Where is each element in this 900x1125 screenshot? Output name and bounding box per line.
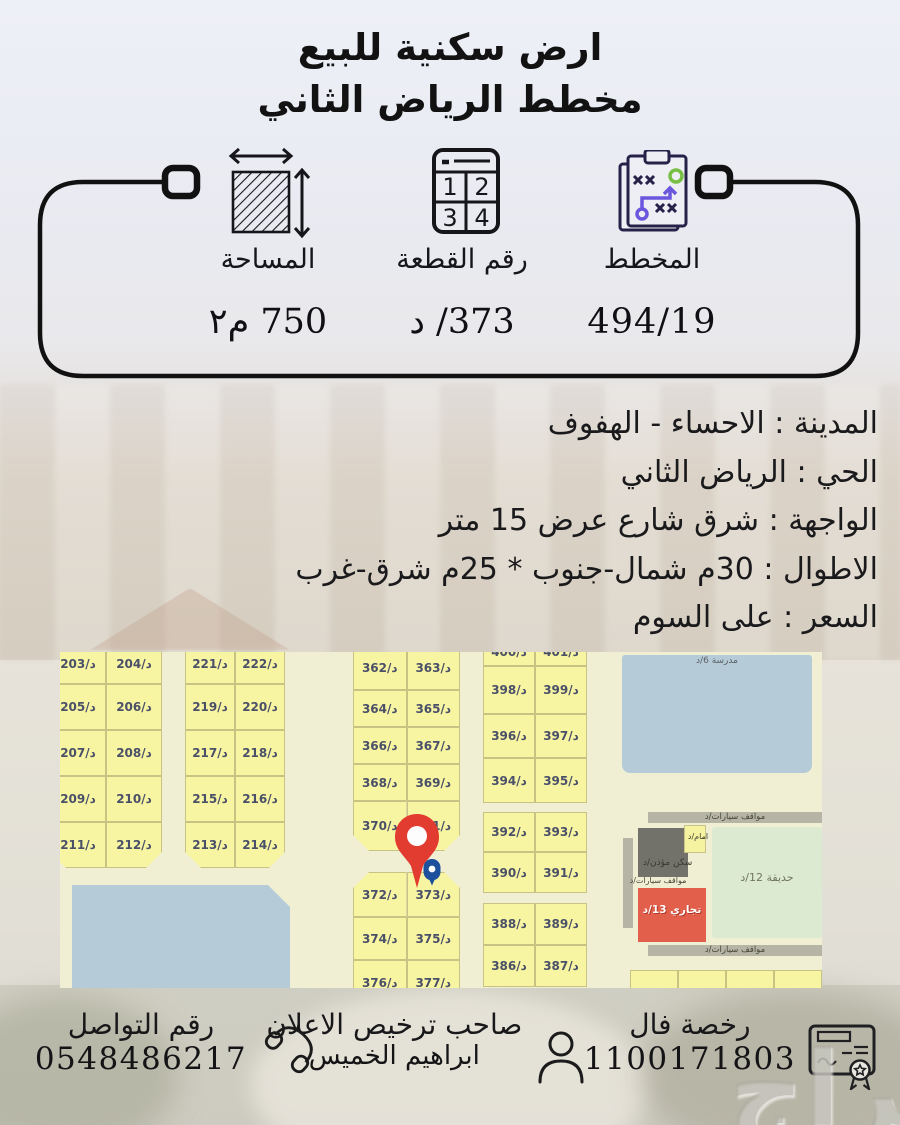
- commercial-block: تجاري 13/د: [638, 888, 706, 942]
- plot-map: مدرسة 6/د مواقف سيارات/د مواقف سيارات/د …: [60, 652, 822, 988]
- border-handle-right-icon: [698, 168, 730, 196]
- plot-cell: 206/د: [106, 684, 162, 730]
- property-details: المدينة : الاحساء - الهفوف الحي : الرياض…: [295, 400, 878, 643]
- plot-cell: 218/د: [235, 730, 285, 776]
- page-title: ارض سكنية للبيع مخطط الرياض الثاني: [0, 22, 900, 126]
- plot-cell: 377/د: [407, 960, 461, 988]
- plot-cell: 387/د: [535, 945, 587, 987]
- contact-label: رقم التواصل: [68, 1008, 214, 1041]
- contact-number: 0548486217: [35, 1041, 247, 1077]
- detail-line-city: المدينة : الاحساء - الهفوف: [295, 400, 878, 449]
- advertiser-name: ابراهيم الخميس: [309, 1041, 480, 1071]
- plot-number-value: 373/ د: [367, 302, 557, 342]
- plot-cell: 391/د: [535, 852, 587, 893]
- svg-text:3: 3: [442, 204, 457, 232]
- plot-cell: 392/د: [483, 812, 535, 852]
- detail-line-facade: الواجهة : شرق شارع عرض 15 متر: [295, 497, 878, 546]
- plot-cell: 393/د: [535, 812, 587, 852]
- plot-cell: 395/د: [535, 758, 587, 803]
- plot-cell: 204/د: [106, 652, 162, 684]
- title-line-1: ارض سكنية للبيع: [0, 22, 900, 74]
- garden-label: حديقة 12/د: [712, 871, 822, 884]
- plot-cell: 209/د: [60, 776, 106, 822]
- plot-cell: 367/د: [407, 727, 461, 764]
- plan-value: 494/19: [557, 302, 747, 342]
- parking-bottom-label: مواقف سيارات/د: [648, 945, 822, 956]
- plot-cell: 366/د: [353, 727, 407, 764]
- plot-cell: 397/د: [535, 714, 587, 758]
- parking-top-label: مواقف سيارات/د: [648, 812, 822, 823]
- plot-cell: 374/د: [353, 917, 407, 960]
- plot-cell: 210/د: [106, 776, 162, 822]
- plot-cell: 362/د: [353, 652, 407, 690]
- plot-number-label: رقم القطعة: [367, 244, 557, 275]
- plot-cell: 369/د: [407, 764, 461, 801]
- phone-icon: [259, 1020, 319, 1080]
- school-block-2: [72, 885, 290, 988]
- plot-cell: 365/د: [407, 690, 461, 727]
- plot-cell: 390/د: [483, 852, 535, 893]
- plot-cell: 400/د: [483, 652, 535, 666]
- svg-text:4: 4: [474, 204, 489, 232]
- plot-cell: 212/د: [106, 822, 162, 868]
- school-block: مدرسة 6/د: [622, 655, 812, 773]
- plot-cell: 364/د: [353, 690, 407, 727]
- plot-cell: 213/د: [185, 822, 235, 868]
- area-icon: [228, 146, 314, 244]
- plot-cell: 222/د: [235, 652, 285, 684]
- plot-cell: 394/د: [483, 758, 535, 803]
- background-photo-layer: [90, 588, 290, 650]
- plot-cell: [774, 970, 822, 988]
- commercial-label: تجاري 13/د: [638, 904, 706, 916]
- plot-cell: 214/د: [235, 822, 285, 868]
- plot-cell: 221/د: [185, 652, 235, 684]
- advertiser-group: صاحب ترخيص الاعلان ابراهيم الخميس: [329, 1008, 588, 1120]
- svg-text:2: 2: [474, 173, 489, 201]
- plot-cell: 389/د: [535, 903, 587, 945]
- plot-cell: 215/د: [185, 776, 235, 822]
- person-icon: [534, 1028, 588, 1086]
- plot-cell: 363/د: [407, 652, 461, 690]
- area-label: المساحة: [173, 244, 363, 275]
- detail-line-dimensions: الاطوال : 30م شمال-جنوب * 25م شرق-غرب: [295, 546, 878, 595]
- plot-cell: 398/د: [483, 666, 535, 714]
- plot-cell: 388/د: [483, 903, 535, 945]
- school-label: مدرسة 6/د: [622, 656, 812, 666]
- plot-cell: [630, 970, 678, 988]
- plot-cell: 207/د: [60, 730, 106, 776]
- plan-label: المخطط: [557, 244, 747, 275]
- parking-strip-top: مواقف سيارات/د: [648, 812, 822, 823]
- plot-cell: 219/د: [185, 684, 235, 730]
- detail-line-price: السعر : على السوم: [295, 594, 878, 643]
- plan-clipboard-icon: [616, 150, 694, 234]
- plot-cell: 203/د: [60, 652, 106, 684]
- area-value: 750 م٢: [173, 302, 363, 342]
- plot-cell: 217/د: [185, 730, 235, 776]
- plot-cell: 396/د: [483, 714, 535, 758]
- contact-group: رقم التواصل 0548486217: [18, 1008, 329, 1120]
- plot-cell: 376/د: [353, 960, 407, 988]
- garden-block: حديقة 12/د: [712, 827, 822, 938]
- detail-line-district: الحي : الرياض الثاني: [295, 449, 878, 498]
- plot-cell: [726, 970, 774, 988]
- selected-plot-marker-icon: [422, 858, 442, 886]
- plot-cell: 211/د: [60, 822, 106, 868]
- plot-cell: 205/د: [60, 684, 106, 730]
- plot-cell: 216/د: [235, 776, 285, 822]
- plot-cell: [678, 970, 726, 988]
- plot-number-icon: 1 2 3 4: [432, 148, 500, 234]
- plot-cell: 401/د: [535, 652, 587, 666]
- border-handle-left-icon: [165, 168, 197, 196]
- watermark: حراج: [728, 1028, 900, 1125]
- plot-cell: 399/د: [535, 666, 587, 714]
- plot-cell: 220/د: [235, 684, 285, 730]
- parking-side-label: مواقف سيارات/د: [622, 876, 694, 885]
- plot-cell: 386/د: [483, 945, 535, 987]
- parking-strip-bottom: مواقف سيارات/د: [648, 945, 822, 956]
- plot-cell: 208/د: [106, 730, 162, 776]
- svg-text:1: 1: [442, 173, 457, 201]
- plot-cell: 375/د: [407, 917, 461, 960]
- muezzin-label: سكن مؤذن/د: [643, 858, 692, 868]
- summary-card: 1 2 3 4 المخطط رقم القطعة المساحة 494/19: [38, 180, 860, 378]
- listing-flyer: ارض سكنية للبيع مخطط الرياض الثاني: [0, 0, 900, 1125]
- title-line-2: مخطط الرياض الثاني: [0, 74, 900, 126]
- plot-cell: 368/د: [353, 764, 407, 801]
